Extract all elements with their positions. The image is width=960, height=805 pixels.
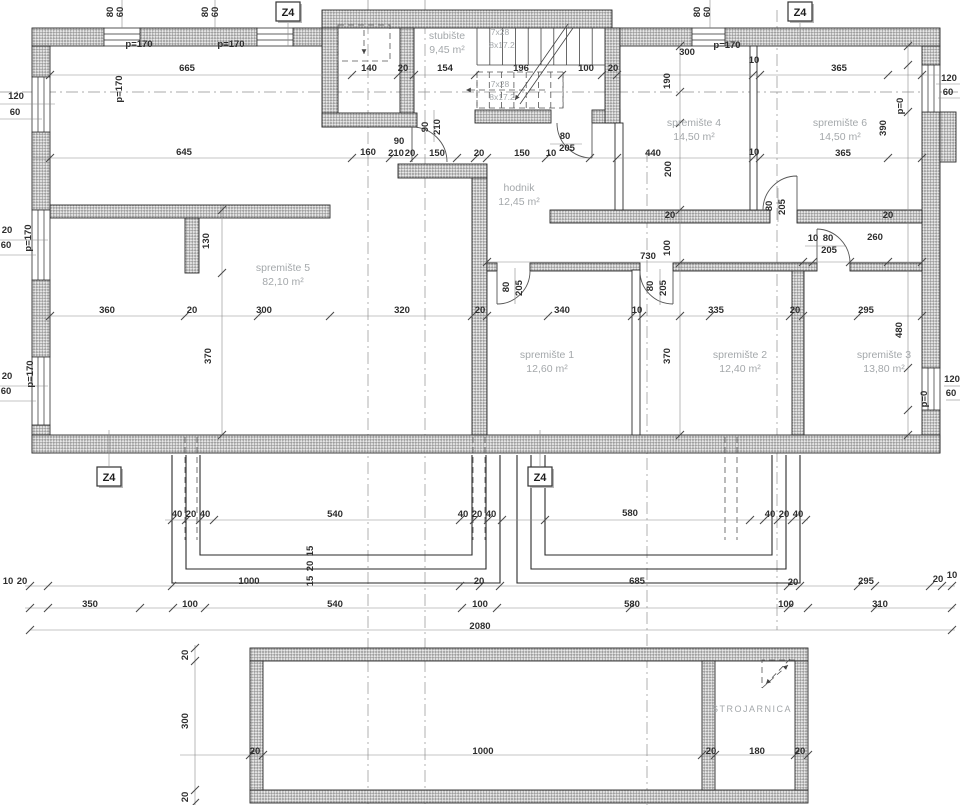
dimension-label: 100 [182,599,198,610]
dimension-label: 685 [629,576,646,587]
dimension-label: 40 [172,509,183,520]
dimension-label: 60 [1,240,12,251]
dimension-label: 60 [10,107,21,118]
dimension-label: 665 [179,63,196,74]
dimension-label: 20 [474,576,485,587]
dimension-label: 20 [933,574,944,585]
room-area-label: 12,60 m² [526,363,568,375]
dimension-label: 205 [821,245,838,256]
dimension-label: 2080 [469,621,490,632]
dimension-label: 160 [360,147,376,158]
dimension-label: 20 [474,148,485,159]
dimension-label: 350 [82,599,98,610]
dimension-label: 365 [835,148,852,159]
dimension-label: 360 [99,305,115,316]
dimension-label: 60 [702,7,713,18]
dimension-label: 20 [788,577,799,588]
dimension-label: 100 [472,599,488,610]
dimension-label: 10 [749,55,760,66]
dimension-label: 120 [944,374,960,385]
dimension-label: 80 [645,281,656,292]
dimension-label: 20 [795,746,806,757]
dimension-label: 60 [1,386,12,397]
dimension-label: 295 [858,576,875,587]
dimension-label: 130 [201,233,212,249]
dimension-label: 10 [632,305,643,316]
dimension-label: 100 [778,599,794,610]
dimension-label: 335 [708,305,725,316]
dimension-label: p=170 [25,360,36,387]
dimension-label: 196 [513,63,529,74]
dimension-label: 370 [662,348,673,364]
dimension-label: 20 [180,792,191,803]
dimension-label: 10 [947,570,958,581]
dimension-label: 20 [665,210,676,221]
dimension-label: 20 [17,576,28,587]
dimension-label: 205 [658,279,669,296]
dimension-label: 40 [486,509,497,520]
dimension-label: 100 [662,240,673,256]
section-marker-z4: Z4 [528,467,554,488]
room-label: spremište 3 [857,349,911,361]
room-area-label: 13,80 m² [863,363,905,375]
dimension-label: 205 [559,143,576,154]
room-area-label: 12,45 m² [498,196,540,208]
partition-walls [615,46,757,435]
dimension-label: p=0 [919,391,930,408]
dimension-label: 645 [176,147,193,158]
dimension-label: 580 [622,508,638,519]
dimension-label: 1000 [472,746,493,757]
dimension-label: 295 [858,305,875,316]
dimension-label: 190 [662,73,673,89]
dimension-label: 210 [388,148,404,159]
stair-pitch-note: 8x17.2 [489,40,515,50]
dimension-label: 300 [679,47,695,58]
dimension-label: 205 [514,279,525,296]
dimension-label: 200 [663,161,674,177]
dimension-label: 300 [256,305,272,316]
section-marker-z4: Z4 [788,2,814,23]
dimension-label: 20 [250,746,261,757]
room-label: spremište 2 [713,349,767,361]
room-label: STROJARNICA [712,704,792,714]
dimension-label: 20 [186,509,197,520]
dimension-label: 210 [432,119,443,135]
dimension-label: 120 [8,91,24,102]
room-label: spremište 6 [813,117,867,129]
dimension-label: 60 [946,388,957,399]
dimension-label: p=170 [114,75,125,102]
dimension-label: 90 [394,136,405,147]
dimension-label: 80 [560,131,571,142]
dimension-label: 120 [941,73,957,84]
dimension-label: 20 [187,305,198,316]
section-marker-z4: Z4 [97,467,123,488]
svg-text:Z4: Z4 [534,472,548,484]
dimension-label: 480 [894,322,905,338]
dimension-label: 1000 [238,576,259,587]
dimension-label: 80 [501,282,512,293]
dimension-label: 365 [831,63,848,74]
dimension-label: 10 [808,233,819,244]
svg-text:Z4: Z4 [794,7,808,19]
dimension-label: 80 [823,233,834,244]
dimension-label: 20 [405,148,416,159]
dimension-label: 540 [327,599,343,610]
dimension-label: 60 [943,87,954,98]
dimension-label: p=170 [23,224,34,251]
dimension-label: 20 [305,561,316,572]
dimension-label: 260 [867,232,883,243]
stair-pitch-note: 7x28 [491,79,510,89]
dimension-label: p=170 [713,40,740,51]
dimension-label: 90 [420,122,431,133]
dimension-label: 40 [793,509,804,520]
dimension-label: 15 [305,545,316,556]
section-marker-z4: Z4 [276,2,302,23]
dimension-label: p=170 [217,39,244,50]
room-labels: stubište9,45 m²spremište 414,50 m²spremi… [256,30,911,714]
dimension-label: 540 [327,509,343,520]
dimension-label: 20 [706,746,717,757]
dimension-label: 140 [361,63,377,74]
dimension-label: 100 [578,63,594,74]
svg-text:Z4: Z4 [103,472,117,484]
dimension-label: 20 [398,63,409,74]
stair-notes: 7x288x17.27x288x17.2 [489,27,515,102]
vent-symbol [762,659,795,688]
dimension-label: 20 [475,305,486,316]
room-area-label: 14,50 m² [819,131,861,143]
dimension-label: 205 [777,198,788,215]
dimension-label: 20 [883,210,894,221]
dimension-label: 20 [779,509,790,520]
floor-plan: 806080608060p=170p=170p=1706651402015419… [0,0,960,805]
dimension-label: 150 [514,148,530,159]
dimension-label: 300 [180,713,191,729]
dimension-label: 60 [210,7,221,18]
room-label: stubište [429,30,465,42]
dimension-label: 15 [305,575,316,586]
dimension-label: 154 [437,63,454,74]
dimension-label: 10 [3,576,14,587]
dimension-label: 20 [180,650,191,661]
dimension-label: 20 [608,63,619,74]
dimension-label: 20 [2,225,13,236]
dimension-ticks [26,42,956,805]
dimension-label: 150 [429,148,445,159]
room-label: spremište 1 [520,349,574,361]
room-label: spremište 4 [667,117,721,129]
room-area-label: 82,10 m² [262,276,304,288]
room-area-label: 12,40 m² [719,363,761,375]
room-area-label: 14,50 m² [673,131,715,143]
room-area-label: 9,45 m² [429,44,465,56]
dimension-label: 10 [546,148,557,159]
dimension-label: 320 [394,305,410,316]
dimension-label: 370 [203,348,214,364]
dimension-label: 390 [878,120,889,136]
dimension-label: 440 [645,148,661,159]
dimension-label: 20 [790,305,801,316]
dimension-label: 20 [2,371,13,382]
stair-pitch-note: 8x17.2 [489,92,515,102]
dimension-label: 60 [115,7,126,18]
dimension-label: 10 [749,147,760,158]
stair-pitch-note: 7x28 [491,27,510,37]
svg-text:Z4: Z4 [282,7,296,19]
dimension-label: 340 [554,305,570,316]
dimension-label: 580 [624,599,640,610]
dimension-label: 310 [872,599,888,610]
dimension-label: 40 [765,509,776,520]
dimension-label: 180 [749,746,765,757]
floor-plan-canvas: 806080608060p=170p=170p=1706651402015419… [0,0,960,805]
dimension-label: 730 [640,251,656,262]
dimension-label: 20 [472,509,483,520]
room-label: spremište 5 [256,262,310,274]
dimension-label: p=170 [125,39,152,50]
dimension-label: 40 [200,509,211,520]
staircase [338,24,605,108]
dimension-label: 40 [458,509,469,520]
room-label: hodnik [504,182,536,194]
dimension-label: p=0 [895,98,906,115]
dimension-label: 80 [764,201,775,212]
